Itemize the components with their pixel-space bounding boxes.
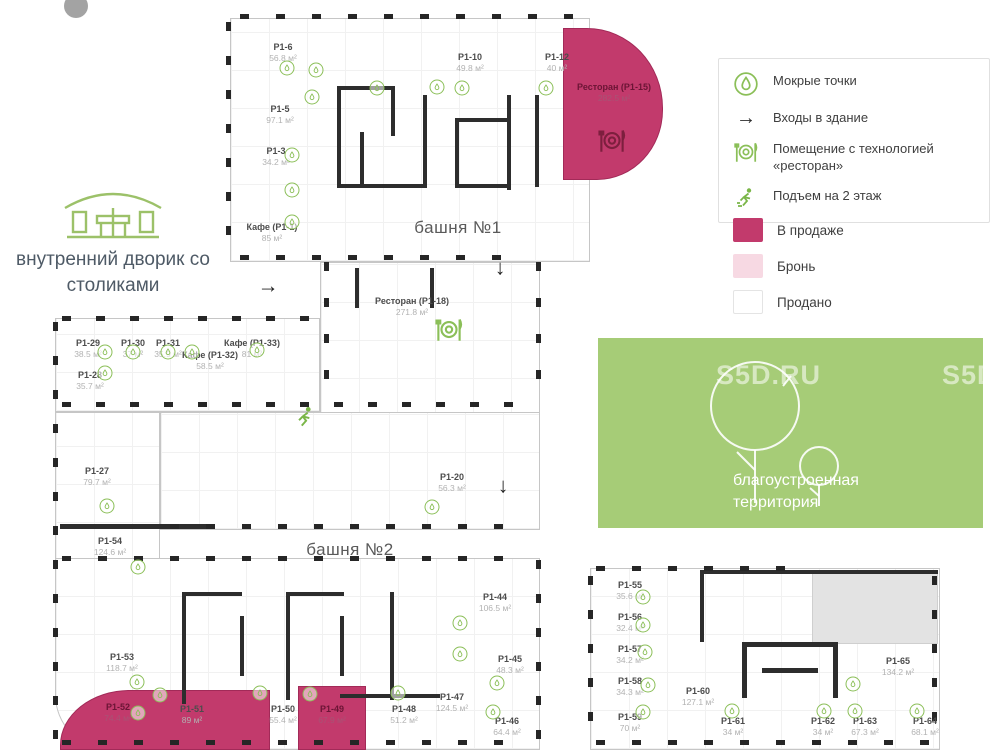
column-mark: [932, 576, 937, 585]
column-mark: [588, 644, 593, 653]
column-mark: [170, 524, 179, 529]
room-area: 97.1 м²: [266, 115, 294, 126]
column-mark: [314, 740, 323, 745]
wet-point-icon: [253, 686, 268, 701]
room-area: 134.2 м²: [882, 667, 914, 678]
room-area: 85 м²: [247, 233, 298, 244]
wet-point-icon: [130, 675, 145, 690]
wet-point-icon: [490, 676, 505, 691]
column-mark: [456, 255, 465, 260]
column-mark: [536, 696, 541, 705]
room-name: P1-49: [318, 704, 346, 715]
column-mark: [98, 740, 107, 745]
column-mark: [334, 402, 343, 407]
column-mark: [198, 316, 207, 321]
wall-segment: [286, 592, 344, 596]
room-name: P1-44: [479, 592, 511, 603]
column-mark: [384, 255, 393, 260]
column-mark: [226, 124, 231, 133]
column-mark: [206, 556, 215, 561]
wet-point-icon: [131, 560, 146, 575]
room-name: P1-12: [545, 52, 569, 63]
column-mark: [226, 90, 231, 99]
room-area: 64.4 м²: [493, 727, 521, 738]
column-mark: [536, 730, 541, 739]
column-mark: [53, 560, 58, 569]
wet-point-icon: [636, 705, 651, 720]
column-mark: [536, 628, 541, 637]
column-mark: [276, 14, 285, 19]
column-mark: [53, 424, 58, 433]
column-mark: [776, 740, 785, 745]
wet-point-icon: [98, 345, 113, 360]
column-mark: [588, 610, 593, 619]
column-mark: [422, 556, 431, 561]
room-name: P1-47: [436, 692, 468, 703]
restaurant-icon: [731, 139, 761, 165]
status-legend: В продаже Бронь Продано: [733, 218, 844, 314]
column-mark: [278, 556, 287, 561]
column-mark: [632, 740, 641, 745]
room-label[interactable]: P1-53118.7 м²: [106, 652, 138, 674]
restaurant-icon: [597, 126, 627, 161]
column-mark: [314, 524, 323, 529]
watermark: S5D.RU: [716, 360, 821, 391]
room-area: 56.3 м²: [438, 483, 466, 494]
wall-segment: [455, 184, 511, 188]
legend-box: Мокрые точки → Входы в здание Помещение …: [718, 58, 990, 223]
room-area: 118.7 м²: [106, 663, 138, 674]
entrance-arrow-icon: →: [731, 108, 761, 128]
column-mark: [206, 524, 215, 529]
column-mark: [588, 712, 593, 721]
column-mark: [494, 556, 503, 561]
room-label[interactable]: P1-5834.3 м²: [616, 676, 644, 698]
sold-swatch: [733, 290, 763, 314]
room-label[interactable]: P1-65134.2 м²: [882, 656, 914, 678]
room-area: 34 м²: [811, 727, 835, 738]
column-mark: [242, 740, 251, 745]
column-mark: [53, 458, 58, 467]
room-area: 34 м²: [721, 727, 745, 738]
column-mark: [536, 560, 541, 569]
column-mark: [278, 740, 287, 745]
wet-point-icon: [486, 705, 501, 720]
wet-point-icon: [455, 81, 470, 96]
column-mark: [232, 316, 241, 321]
column-mark: [324, 298, 329, 307]
column-mark: [536, 262, 541, 271]
column-mark: [324, 370, 329, 379]
column-mark: [198, 402, 207, 407]
column-mark: [232, 402, 241, 407]
wall-segment: [240, 616, 244, 676]
room-area: 124.5 м²: [436, 703, 468, 714]
room-area: 51.2 м²: [390, 715, 418, 726]
wet-point-icon: [636, 590, 651, 605]
column-mark: [494, 740, 503, 745]
room-label[interactable]: P1-6367.3 м²: [851, 716, 879, 738]
wet-point-icon: [185, 345, 200, 360]
room-label[interactable]: P1-4664.4 м²: [493, 716, 521, 738]
room-name: Ресторан (P1-18): [375, 296, 449, 307]
room-label[interactable]: P1-60127.1 м²: [682, 686, 714, 708]
wall-segment: [742, 642, 838, 647]
column-mark: [134, 740, 143, 745]
column-mark: [53, 594, 58, 603]
room-label[interactable]: P1-6134 м²: [721, 716, 745, 738]
green-area-label: благоустроенная территория: [733, 470, 913, 515]
wall-segment: [700, 570, 938, 574]
room-label[interactable]: P1-5274.4 м²: [104, 702, 132, 724]
room-area: 127.1 м²: [682, 697, 714, 708]
column-mark: [812, 740, 821, 745]
wall-segment: [360, 132, 364, 188]
room-name: P1-60: [682, 686, 714, 697]
room-area: 49.8 м²: [456, 63, 484, 74]
wall-segment: [182, 592, 242, 596]
wet-point-icon: [453, 647, 468, 662]
column-mark: [536, 298, 541, 307]
column-mark: [368, 402, 377, 407]
column-mark: [96, 316, 105, 321]
room-name: P1-48: [390, 704, 418, 715]
wall-segment: [355, 268, 359, 308]
entrance-arrow-icon: ↓: [498, 476, 509, 497]
room-area: 68.1 м²: [911, 727, 939, 738]
column-mark: [536, 334, 541, 343]
column-mark: [170, 556, 179, 561]
column-mark: [62, 556, 71, 561]
column-mark: [420, 255, 429, 260]
column-mark: [528, 14, 537, 19]
room-name: P1-65: [882, 656, 914, 667]
column-mark: [422, 524, 431, 529]
wall-segment: [742, 642, 747, 698]
wet-point-icon: [817, 704, 832, 719]
room-area: 67.9 м²: [318, 715, 346, 726]
wall-segment: [391, 86, 395, 136]
wet-point-icon: [126, 345, 141, 360]
column-mark: [932, 678, 937, 687]
room-name: P1-51: [180, 704, 204, 715]
wet-point-icon: [725, 704, 740, 719]
room-name: P1-45: [496, 654, 524, 665]
column-mark: [596, 740, 605, 745]
wet-point-icon: [846, 677, 861, 692]
wall-segment: [337, 86, 395, 90]
column-mark: [458, 740, 467, 745]
column-mark: [458, 556, 467, 561]
column-mark: [226, 192, 231, 201]
wet-point-icon: [280, 61, 295, 76]
room-area: 79.7 м²: [83, 477, 111, 488]
column-mark: [386, 524, 395, 529]
room-area: 106.5 м²: [479, 603, 511, 614]
room-name: P1-50: [269, 704, 297, 715]
column-mark: [386, 740, 395, 745]
entrance-arrow-icon: →: [258, 276, 279, 297]
column-mark: [62, 402, 71, 407]
wall-segment: [507, 95, 511, 190]
room-name: P1-53: [106, 652, 138, 663]
entrance-arrow-icon: ↓: [495, 258, 506, 279]
column-mark: [53, 696, 58, 705]
column-mark: [932, 610, 937, 619]
watermark: S5D.RU: [942, 360, 1000, 391]
column-mark: [494, 524, 503, 529]
room-name: P1-52: [104, 702, 132, 713]
wall-segment: [340, 616, 344, 676]
room-area: 89 м²: [180, 715, 204, 726]
mid-band-outline: [160, 412, 540, 530]
room-area: 67.3 м²: [851, 727, 879, 738]
room-label[interactable]: P1-2056.3 м²: [438, 472, 466, 494]
wet-point-icon: [848, 704, 863, 719]
reserved-swatch: [733, 254, 763, 278]
room-area: 55.4 м²: [269, 715, 297, 726]
room-area: 34.3 м²: [616, 687, 644, 698]
restaurant-icon: [434, 315, 464, 350]
wet-point-icon: [638, 645, 653, 660]
wet-point-icon: [391, 686, 406, 701]
wall-segment: [182, 592, 186, 704]
room-label[interactable]: P1-44106.5 м²: [479, 592, 511, 614]
map-marker-dot: [64, 0, 88, 18]
column-mark: [53, 492, 58, 501]
wet-point-icon: [305, 90, 320, 105]
column-mark: [226, 226, 231, 235]
tower2-label: башня №2: [306, 540, 393, 560]
room-name: P1-54: [94, 536, 126, 547]
stairs-runner-icon: [731, 186, 761, 210]
column-mark: [588, 576, 593, 585]
column-mark: [53, 390, 58, 399]
column-mark: [276, 255, 285, 260]
column-mark: [53, 322, 58, 331]
column-mark: [932, 644, 937, 653]
room-label[interactable]: P1-5055.4 м²: [269, 704, 297, 726]
column-mark: [704, 740, 713, 745]
column-mark: [668, 740, 677, 745]
column-mark: [596, 566, 605, 571]
column-mark: [456, 14, 465, 19]
column-mark: [62, 316, 71, 321]
room-area: 70 м²: [618, 723, 642, 734]
room-label[interactable]: P1-47124.5 м²: [436, 692, 468, 714]
courtyard-label: внутренний дворик со столиками: [8, 247, 218, 298]
status-sold: Продано: [733, 290, 844, 314]
wet-point-icon: [285, 183, 300, 198]
room-label[interactable]: P1-4851.2 м²: [390, 704, 418, 726]
room-label[interactable]: P1-5189 м²: [180, 704, 204, 726]
wet-point-icon: [309, 63, 324, 78]
wall-segment: [337, 86, 341, 186]
column-mark: [53, 356, 58, 365]
wall-segment: [455, 118, 511, 122]
column-mark: [420, 14, 429, 19]
room-name: P1-10: [456, 52, 484, 63]
column-mark: [402, 402, 411, 407]
room-label[interactable]: P1-6234 м²: [811, 716, 835, 738]
column-mark: [504, 402, 513, 407]
status-for-sale: В продаже: [733, 218, 844, 242]
legend-item-wet-points: Мокрые точки: [731, 71, 977, 97]
room-area: 48.3 м²: [496, 665, 524, 676]
column-mark: [348, 14, 357, 19]
column-mark: [53, 662, 58, 671]
wall-segment: [60, 524, 210, 529]
column-mark: [564, 14, 573, 19]
column-mark: [240, 14, 249, 19]
room-label[interactable]: P1-54124.6 м²: [94, 536, 126, 558]
wall-segment: [762, 668, 818, 673]
column-mark: [350, 524, 359, 529]
room-label[interactable]: P1-1240 м²: [545, 52, 569, 74]
column-mark: [266, 402, 275, 407]
column-mark: [242, 556, 251, 561]
room-label[interactable]: P1-4548.3 м²: [496, 654, 524, 676]
wet-point-icon: [161, 345, 176, 360]
legend-item-entrances: → Входы в здание: [731, 108, 977, 128]
wet-point-icon: [910, 704, 925, 719]
column-mark: [384, 14, 393, 19]
room-area: 40 м²: [545, 63, 569, 74]
room-label[interactable]: P1-1049.8 м²: [456, 52, 484, 74]
room-label[interactable]: P1-597.1 м²: [266, 104, 294, 126]
technical-block: [812, 572, 938, 644]
column-mark: [226, 22, 231, 31]
room-name: P1-27: [83, 466, 111, 477]
column-mark: [312, 14, 321, 19]
column-mark: [588, 678, 593, 687]
wall-segment: [535, 95, 539, 187]
wall-segment: [700, 570, 704, 642]
column-mark: [536, 594, 541, 603]
wall-segment: [423, 95, 427, 188]
column-mark: [536, 370, 541, 379]
column-mark: [62, 740, 71, 745]
status-reserved: Бронь: [733, 254, 844, 278]
column-mark: [300, 316, 309, 321]
wet-point-icon: [303, 687, 318, 702]
column-mark: [278, 524, 287, 529]
wet-point-icon: [430, 80, 445, 95]
column-mark: [632, 566, 641, 571]
column-mark: [266, 316, 275, 321]
column-mark: [53, 730, 58, 739]
column-mark: [130, 316, 139, 321]
stairs-runner-icon: [292, 405, 318, 436]
column-mark: [470, 402, 479, 407]
column-mark: [422, 740, 431, 745]
room-area: 35.7 м²: [76, 381, 104, 392]
column-mark: [776, 566, 785, 571]
column-mark: [458, 524, 467, 529]
column-mark: [324, 262, 329, 271]
room-name: P1-6: [269, 42, 297, 53]
wet-point-icon: [100, 499, 115, 514]
column-mark: [324, 334, 329, 343]
wet-point-icon: [98, 366, 113, 381]
column-mark: [206, 740, 215, 745]
wet-point-icon: [250, 343, 265, 358]
column-mark: [164, 316, 173, 321]
column-mark: [226, 56, 231, 65]
column-mark: [920, 740, 929, 745]
legend-item-restaurant: Помещение с технологией «ресторан»: [731, 139, 977, 175]
room-label[interactable]: P1-2779.7 м²: [83, 466, 111, 488]
wet-point-icon: [131, 706, 146, 721]
column-mark: [740, 566, 749, 571]
wet-point-icon: [425, 500, 440, 515]
column-mark: [53, 628, 58, 637]
wall-segment: [833, 642, 838, 698]
room-name: Ресторан (P1-15): [577, 82, 651, 93]
wet-point-icon: [453, 616, 468, 631]
column-mark: [436, 402, 445, 407]
wet-point-icon: [731, 71, 761, 97]
wet-point-icon: [636, 618, 651, 633]
column-mark: [740, 740, 749, 745]
column-mark: [312, 255, 321, 260]
column-mark: [348, 255, 357, 260]
legend-item-second-floor: Подъем на 2 этаж: [731, 186, 977, 210]
wet-point-icon: [153, 688, 168, 703]
column-mark: [170, 740, 179, 745]
wet-point-icon: [285, 215, 300, 230]
room-area: 58.5 м²: [182, 361, 238, 372]
column-mark: [242, 524, 251, 529]
column-mark: [668, 566, 677, 571]
tower1-label: башня №1: [414, 218, 501, 238]
umbrella-table-icon: [53, 229, 173, 246]
wall-segment: [286, 592, 290, 700]
wall-segment: [337, 184, 427, 188]
for-sale-swatch: [733, 218, 763, 242]
wet-point-icon: [370, 81, 385, 96]
column-mark: [492, 14, 501, 19]
column-mark: [536, 662, 541, 671]
room-label[interactable]: P1-6468.1 м²: [911, 716, 939, 738]
room-area: 74.4 м²: [104, 713, 132, 724]
column-mark: [240, 255, 249, 260]
wet-point-icon: [539, 81, 554, 96]
column-mark: [350, 740, 359, 745]
column-mark: [884, 740, 893, 745]
column-mark: [848, 740, 857, 745]
room-label[interactable]: P1-4967.9 м²: [318, 704, 346, 726]
column-mark: [53, 526, 58, 535]
column-mark: [130, 402, 139, 407]
wall-segment: [390, 592, 394, 700]
room-area: 282.5 м²: [577, 93, 651, 104]
room-label[interactable]: Ресторан (P1-15)282.5 м²: [577, 82, 651, 104]
room-name: P1-5: [266, 104, 294, 115]
room-name: P1-20: [438, 472, 466, 483]
room-area: 124.6 м²: [94, 547, 126, 558]
column-mark: [96, 402, 105, 407]
wall-segment: [455, 118, 459, 188]
wet-point-icon: [641, 678, 656, 693]
courtyard-block: внутренний дворик со столиками: [8, 180, 218, 298]
column-mark: [226, 158, 231, 167]
wet-point-icon: [285, 148, 300, 163]
column-mark: [704, 566, 713, 571]
column-mark: [164, 402, 173, 407]
